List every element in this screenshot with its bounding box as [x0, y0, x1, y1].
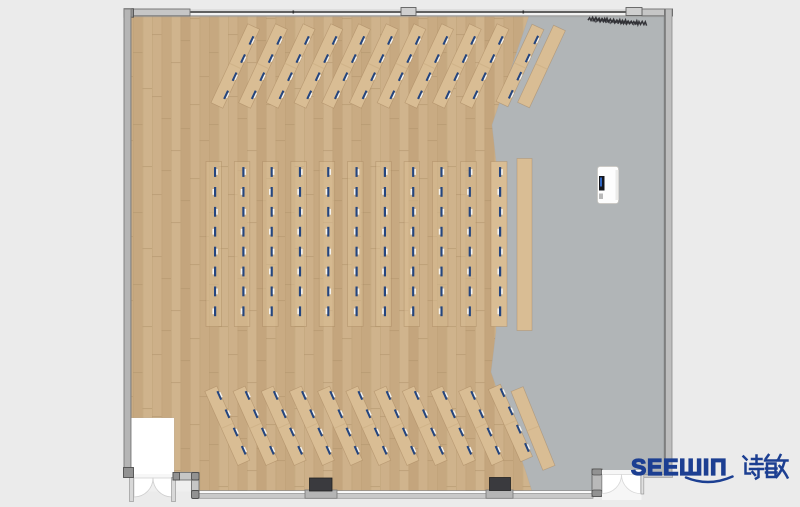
svg-text:SEEШIП: SEEШIП [631, 454, 727, 480]
